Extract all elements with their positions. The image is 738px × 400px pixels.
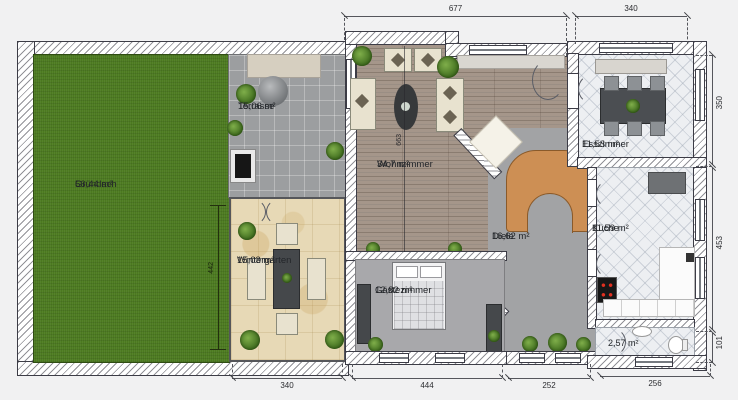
wall-diele-bottom [504,352,596,364]
dim-bottom-wc-label: 256 [600,379,710,389]
door-arc [266,199,292,225]
wall-ess-kueche-divider [578,158,706,168]
dim-right-lower-line [712,333,713,363]
door-arc [596,250,624,278]
dim-bottom-gaestezimmer-line [352,378,502,379]
dining-chair [627,76,642,91]
dim-left-wintergarten-label: 442 [208,262,216,274]
wall-gaeste-bottom [346,352,506,364]
room-area: 16,62 m² [492,230,530,243]
wall-socket [686,253,694,262]
door-arc [240,199,266,225]
window [600,44,672,52]
toilet-tank [682,339,688,351]
table-decor [401,102,410,111]
plant [325,330,344,349]
pillow [420,266,442,278]
dim-top-main-label: 677 [344,4,567,14]
dim-left-end-bar [210,205,226,206]
wall-gaeste-top [346,252,506,260]
room-area: 11,59 m² [592,222,629,235]
dim-bottom-gaestezimmer-label: 444 [352,381,502,391]
dim-top-right-line [575,16,687,17]
plant [240,330,260,350]
wall-green-bottom [18,362,348,375]
dim-top-right-label: 340 [575,4,687,14]
window [636,358,672,366]
dim-extension [502,364,503,378]
sink [632,326,652,337]
plant [576,337,591,352]
door-arc [532,60,564,100]
dim-extension [710,364,711,376]
dim-bottom-wc-line [600,376,710,377]
dim-right-upper-label: 350 [716,96,724,109]
window [556,354,580,362]
dim-left-end-bar [210,349,226,350]
kitchen-counter-white [604,300,694,316]
dim-extension [696,362,712,363]
garden-chair [276,313,298,335]
dim-extension [687,18,688,44]
dining-chair [650,121,665,136]
dim-right-upper-line [712,55,713,165]
door-gap [588,180,596,206]
dining-chair [604,121,619,136]
dim-extension [566,18,567,56]
dim-extension [232,364,233,378]
dim-extension [342,364,343,378]
plant [368,337,383,352]
dim-bottom-diele-label: 252 [508,381,590,391]
stove [598,278,616,302]
room-area: 12,82 m² [375,284,413,297]
room-area: 2,57 m² [608,337,639,350]
wall-green-top [18,42,348,55]
awning [248,55,320,77]
dim-bottom-diele-line [508,378,590,379]
dim-bottom-wintergarten-line [232,378,342,379]
dim-extension [696,55,712,56]
dim-bottom-wintergarten-label: 340 [232,381,342,391]
sideboard [596,60,666,73]
room-area: 15,03 m² [237,254,275,267]
garden-chair [307,258,326,300]
room-area: 15,06 m² [238,100,276,113]
grill-box [231,150,255,182]
dim-top-main-line [344,16,567,17]
floor-plan: Gründach 56,44 m² Terrasse 15,06 m² Wint… [0,0,738,400]
window [696,70,704,120]
dim-extension [575,18,576,44]
dining-chair [650,76,665,91]
cabinet [486,304,502,354]
pillow [396,266,418,278]
wall-ess-left [568,54,578,166]
window [696,200,704,240]
dim-extension [590,364,591,378]
room-area: 11,53 m² [582,138,619,151]
wall-house-top-left [346,32,458,44]
plant [626,99,640,113]
window [696,258,704,298]
door-gap [568,74,578,108]
plant [352,46,372,66]
plant [238,222,256,240]
dim-right-middle-label: 453 [716,236,724,249]
dim-right-middle-line [712,168,713,330]
dining-chair [604,76,619,91]
wall-green-left [18,42,34,375]
dim-left-wintergarten-line [218,205,219,350]
dining-chair [627,121,642,136]
kitchen-counter-dark [648,172,686,194]
dim-extension [352,364,353,378]
wardrobe [357,284,371,344]
dim-wohnzimmer-line [404,46,405,252]
door-gap [588,250,596,276]
plant [282,273,292,283]
plant [227,120,243,136]
plant [548,333,567,352]
plant [522,336,538,352]
garden-chair [276,223,298,245]
plant [437,56,459,78]
dim-wohnzimmer-label: 663 [396,134,404,146]
room-gruendach [34,55,229,362]
dim-extension [696,166,712,167]
room-area: 56,44 m² [75,178,113,191]
window [520,354,544,362]
dim-extension [344,18,345,40]
stairs-arch-cut [527,193,573,233]
window [470,46,526,54]
plant [326,142,344,160]
dim-extension [696,331,712,332]
dim-right-lower-label: 101 [716,336,724,349]
door-arc [596,180,624,208]
window [380,354,408,362]
window [436,354,464,362]
plant [488,330,500,342]
